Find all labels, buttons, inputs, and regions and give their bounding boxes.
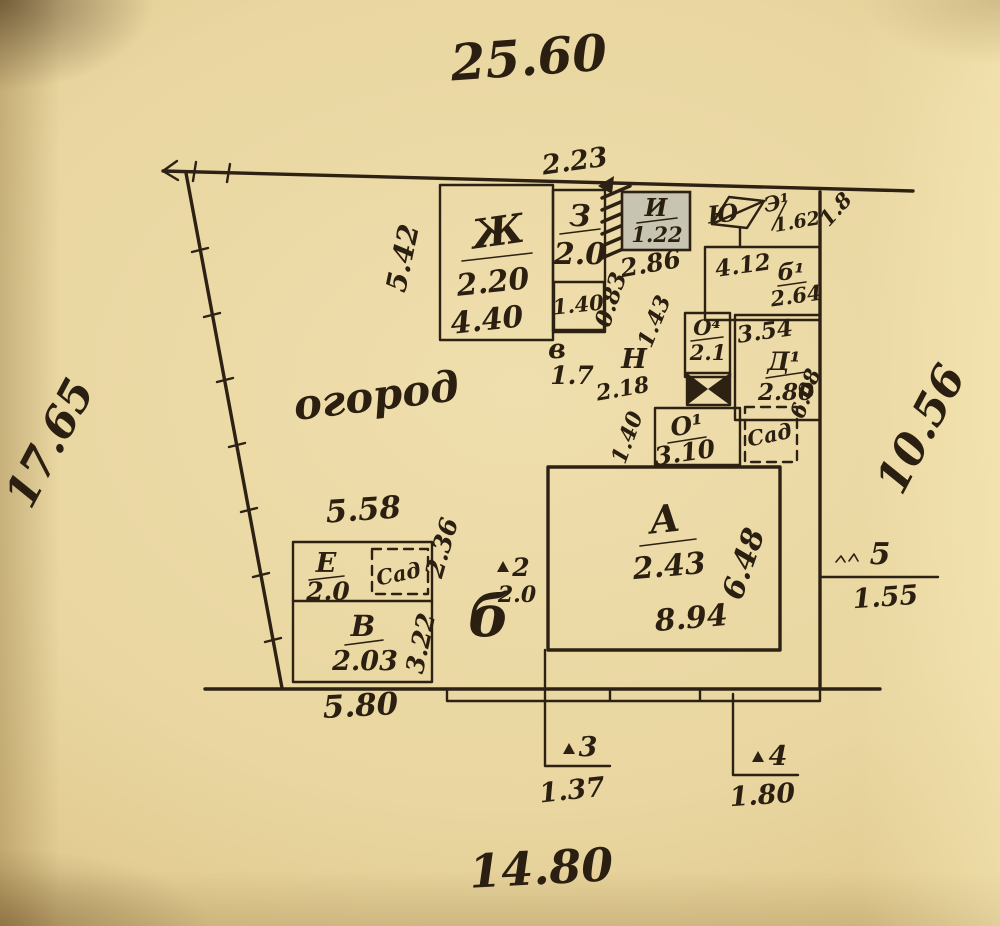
building-d1-label: Д¹ [766, 347, 800, 376]
building-v-side-dim: 3.22 [400, 610, 441, 676]
building-e-top-dim: 5.58 [324, 489, 402, 530]
building-z-area: 2.0 [553, 237, 606, 272]
building-a-area: 2.43 [630, 546, 707, 587]
outer-dimensions: 25.60 17.65 10.56 14.80 [0, 23, 976, 899]
building-zh-label: Ж [466, 205, 528, 259]
building-zh-side-dim: 5.42 [379, 221, 425, 295]
building-v-label: В [350, 609, 376, 643]
dimension-left: 17.65 [0, 370, 105, 516]
survey-point-4: 4 1.80 [729, 694, 798, 813]
point-4-triangle-icon [752, 751, 764, 762]
orchard-right-label: Сад [745, 418, 794, 452]
building-b1-area: 2.64 [768, 280, 823, 312]
building-e-area: 2.0 [305, 577, 350, 606]
point-2-triangle-icon [497, 561, 509, 572]
building-i-label: И [644, 193, 669, 222]
building-z-label: З [569, 199, 591, 234]
structure-yu: Ю Э¹ 1.62 1.8 [705, 187, 857, 247]
point-3-triangle-icon [563, 743, 575, 754]
point-2-value: 2.0 [497, 582, 537, 608]
area-n-dim-143: 1.43 [632, 292, 676, 351]
building-a-label: А [644, 495, 682, 543]
building-z-top-dim: 2.23 [539, 142, 609, 182]
structure-o4: О⁴ 2.1 [685, 313, 730, 377]
building-d1: 3.54 Д¹ 2.80 6.08 [735, 314, 826, 421]
point-5-value: 1.55 [852, 580, 920, 616]
point-3-corner-line [545, 650, 610, 766]
building-zh-width: 4.40 [449, 299, 525, 341]
building-z: 2.23 З 2.0 1.40 в 1.7 [539, 142, 609, 390]
building-a: А 2.43 8.94 6.48 [548, 467, 780, 650]
point-4-corner-line [733, 694, 798, 775]
building-b1-width: 4.12 [713, 248, 772, 283]
area-n-dim-140: 1.40 [606, 407, 649, 467]
building-zh: Ж 2.20 4.40 5.42 [379, 185, 553, 342]
building-e-side-dim: 2.36 [419, 514, 464, 581]
building-i-area: 1.22 [631, 222, 682, 247]
survey-point-5: 5 1.55 [822, 537, 938, 615]
structure-o4-label: О⁴ [693, 315, 721, 340]
dimension-top: 25.60 [448, 23, 610, 93]
point-3-number: 3 [579, 732, 598, 763]
boundary-top-line [163, 171, 913, 191]
area-n-label: Н [620, 344, 648, 375]
building-z-sub-dim: 1.7 [550, 361, 594, 390]
survey-point-3: 3 1.37 [538, 650, 610, 809]
point-4-number: 4 [769, 741, 788, 772]
dimension-bottom: 14.80 [468, 837, 615, 898]
parcel-boundary [163, 161, 913, 701]
point-2-number: 2 [511, 553, 529, 582]
building-a-side-dim: 6.48 [716, 524, 773, 605]
boundary-bottom-double-line [447, 689, 820, 701]
structure-o1: О¹ 3.10 [653, 408, 740, 471]
building-v-bottom-dim: 5.80 [322, 686, 400, 726]
point-3-value: 1.37 [538, 772, 607, 810]
building-v-area: 2.03 [331, 646, 398, 677]
building-i-side-dim: 0.83 [589, 269, 632, 331]
structure-o4-area: 2.1 [689, 340, 727, 365]
point-4-value: 1.80 [729, 778, 797, 814]
building-e-label: Е [315, 548, 337, 579]
point-5-number: 5 [870, 537, 891, 572]
survey-plan: 25.60 17.65 10.56 14.80 огород Ж 2.20 4.… [0, 0, 1000, 926]
building-b1: 4.12 б¹ 2.64 [705, 247, 823, 320]
structure-yu-label: Ю [705, 198, 740, 230]
area-n-dim: 2.18 [593, 372, 651, 407]
building-zh-area: 2.20 [454, 261, 531, 304]
dimension-right: 10.56 [866, 356, 976, 502]
orchard-left-label: Сад [374, 557, 423, 591]
survey-point-2: 2 б 2.0 [468, 553, 537, 650]
point-5-carets [836, 554, 858, 562]
building-a-width: 8.94 [652, 598, 729, 639]
garden-label: огород [291, 361, 462, 430]
boundary-left-ticks [192, 248, 281, 642]
